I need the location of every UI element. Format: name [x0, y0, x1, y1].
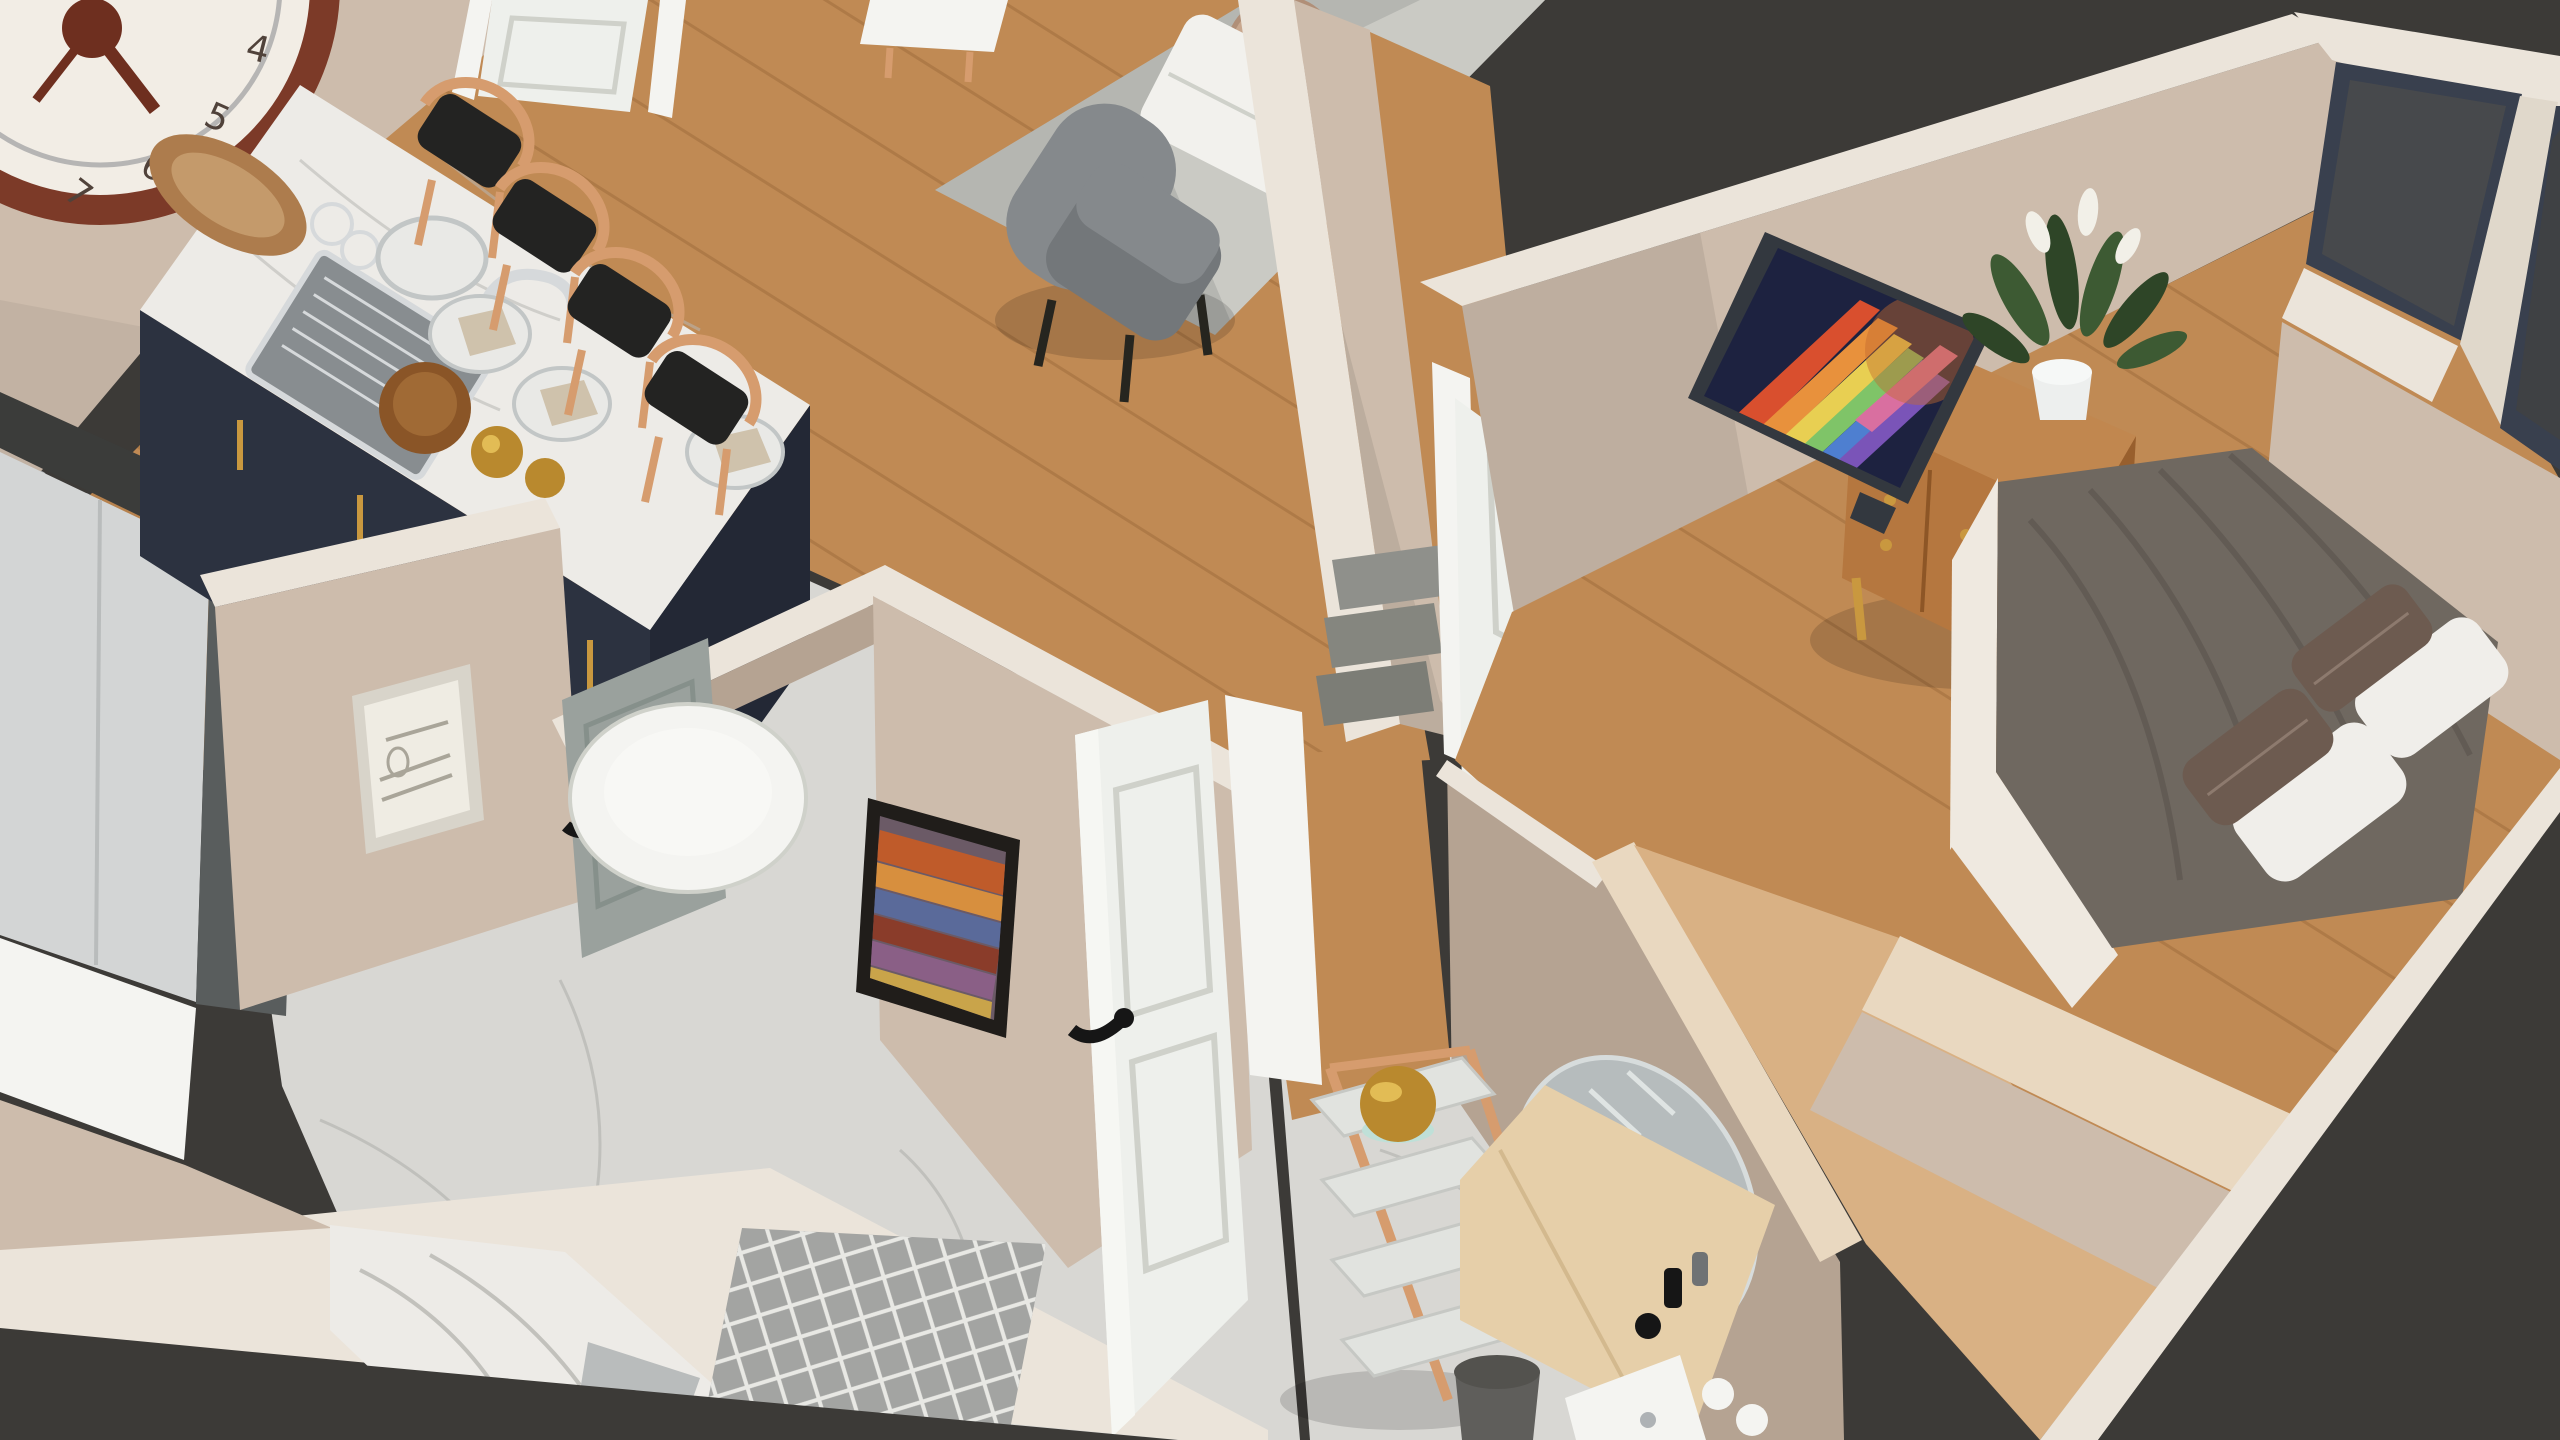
gold-bowl: [1360, 1066, 1436, 1142]
botanical-artwork: [352, 664, 484, 854]
gold-vase: [525, 458, 565, 498]
plate: [378, 218, 486, 298]
armchair-leg: [1124, 335, 1130, 402]
toilet: [570, 704, 806, 892]
gold-vase: [471, 426, 523, 478]
white-cup: [1736, 1404, 1768, 1436]
trash-bin: [1454, 1355, 1540, 1440]
white-cup: [1702, 1378, 1734, 1410]
apartment-render-stage: 4 5 6 7: [0, 0, 2560, 1440]
hall-steps: [1316, 545, 1450, 726]
apartment-3d-render: 4 5 6 7: [0, 0, 2560, 1440]
console-leg: [1856, 578, 1862, 640]
